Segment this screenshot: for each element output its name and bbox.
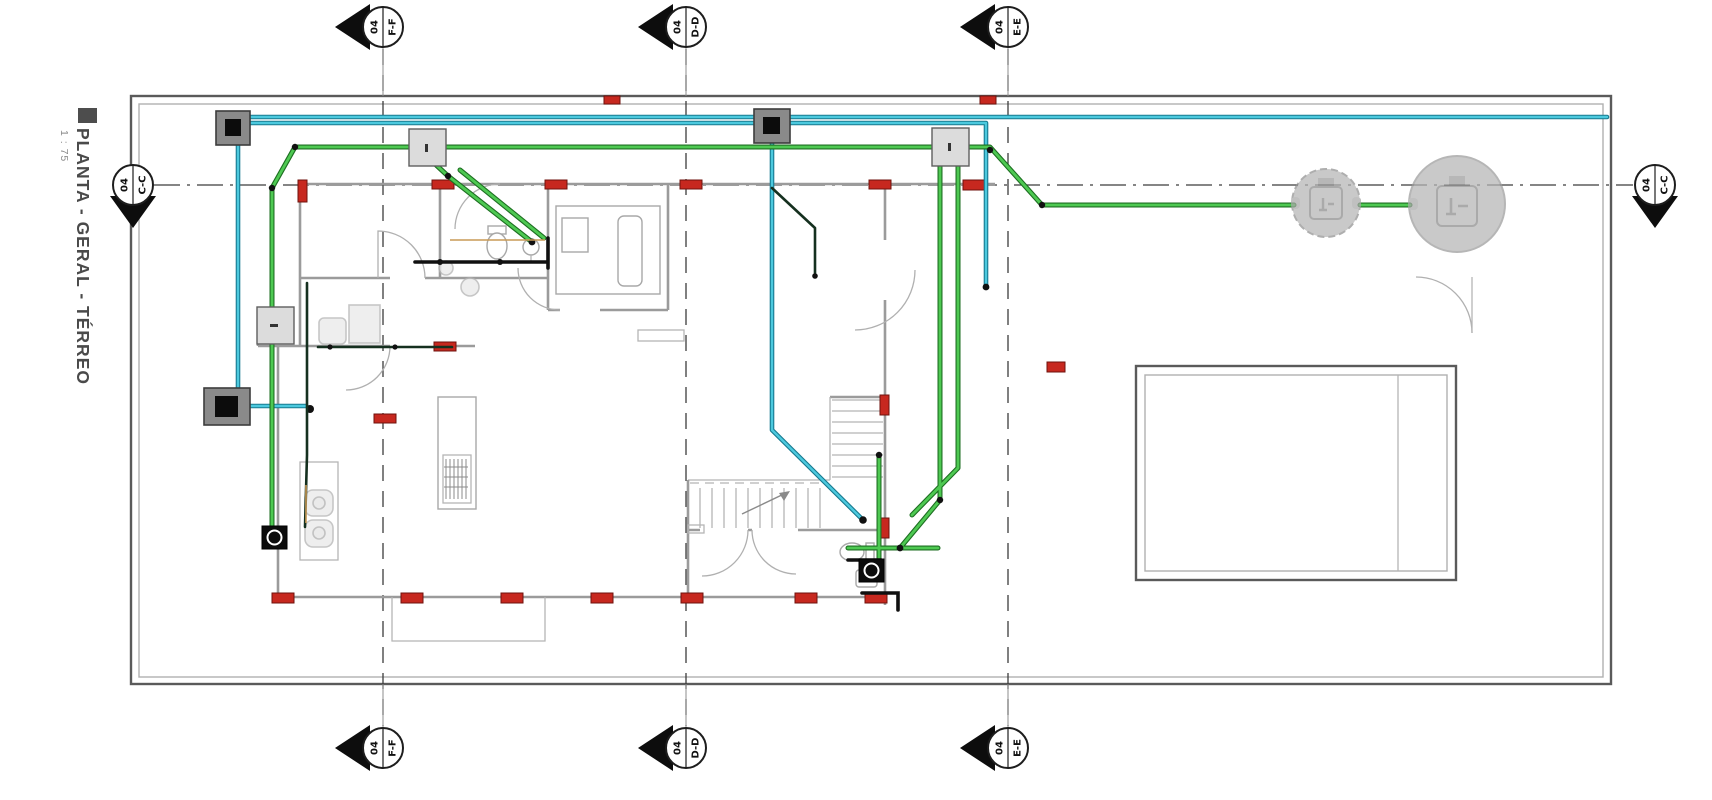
cleanout-box-2 [859, 559, 884, 582]
drawing-viewport: PLANTA - GERAL - TÉRREO 1 : 75 [0, 0, 1712, 800]
junction-box-2 [754, 109, 790, 143]
pool [1136, 366, 1456, 580]
marker-sheet: 04 [370, 741, 381, 755]
wall-cabinet-1 [409, 129, 446, 166]
shower-head-icon [461, 278, 479, 296]
junction-box-1 [216, 111, 250, 145]
washer-icon [319, 318, 346, 344]
marker-sheet: 04 [673, 741, 684, 755]
toilet-upper [487, 226, 507, 259]
section-marker-ff-bottom: F-F 04 [335, 684, 403, 771]
marker-label: C-C [138, 175, 149, 194]
marker-sheet: 04 [120, 178, 131, 192]
fixtures [300, 206, 877, 587]
marker-label: F-F [388, 18, 399, 36]
section-marker-dd-bottom: D-D 04 [638, 684, 706, 771]
marker-label: E-E [1013, 739, 1024, 757]
columns [272, 96, 1065, 603]
stove-icon [349, 305, 380, 343]
marker-sheet: 04 [1642, 178, 1653, 192]
wall-cabinet-2 [932, 128, 969, 166]
septic-tank-icon [1291, 169, 1361, 237]
junction-box-3 [204, 388, 250, 425]
marker-label: E-E [1013, 18, 1024, 36]
section-marker-dd-top: D-D 04 [638, 4, 706, 96]
marker-sheet: 04 [370, 20, 381, 34]
wall-cabinet-3 [257, 307, 294, 344]
kitchen-island [438, 397, 476, 509]
anaerobic-filter-icon [1408, 156, 1505, 252]
marker-sheet: 04 [673, 20, 684, 34]
pipes-water [228, 117, 1607, 524]
section-marker-ff-top: F-F 04 [335, 4, 403, 96]
floor-plan-canvas: F-F 04 D-D 04 E-E 04 [0, 0, 1712, 800]
stair-direction-arrow [742, 491, 790, 514]
section-marker-ee-top: E-E 04 [960, 4, 1028, 96]
section-marker-cc-left: C-C 04 [110, 165, 156, 228]
section-marker-ee-bottom: E-E 04 [960, 684, 1028, 771]
cleanout-box-1 [262, 526, 287, 549]
marker-sheet: 04 [995, 741, 1006, 755]
section-lines [154, 49, 1633, 726]
marker-label: D-D [691, 17, 702, 38]
marker-label: D-D [691, 738, 702, 759]
bed [556, 206, 660, 294]
marker-sheet: 04 [995, 20, 1006, 34]
marker-label: F-F [388, 739, 399, 757]
section-marker-cc-right: C-C 04 [1632, 165, 1678, 228]
marker-label: C-C [1660, 175, 1671, 194]
